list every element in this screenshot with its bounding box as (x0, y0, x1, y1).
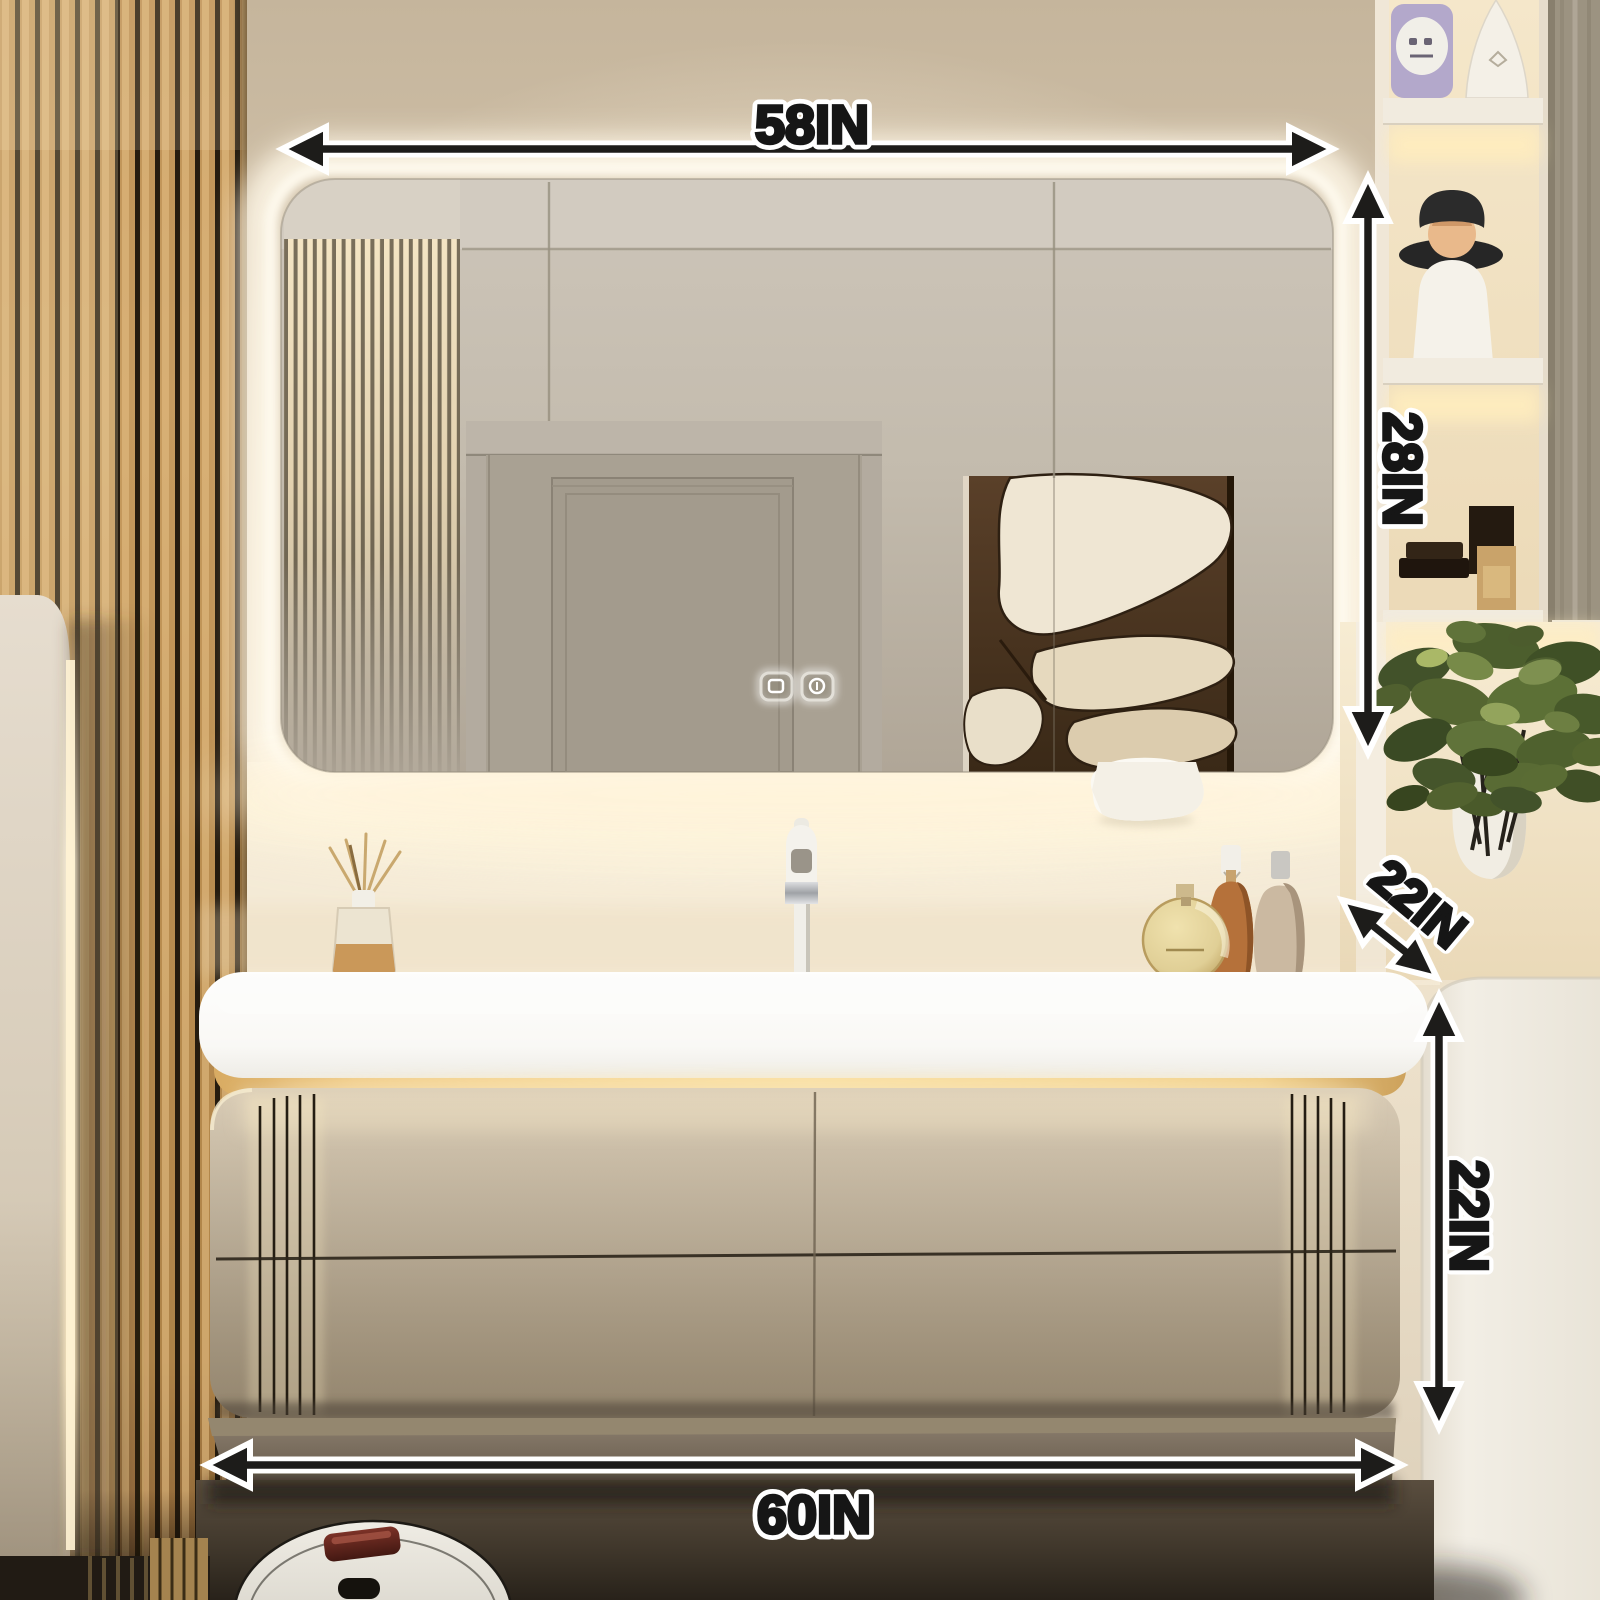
svg-text:58IN: 58IN (755, 95, 869, 155)
svg-text:28IN: 28IN (1372, 412, 1432, 526)
svg-text:60IN: 60IN (757, 1485, 871, 1545)
svg-text:22IN: 22IN (1439, 1160, 1498, 1272)
